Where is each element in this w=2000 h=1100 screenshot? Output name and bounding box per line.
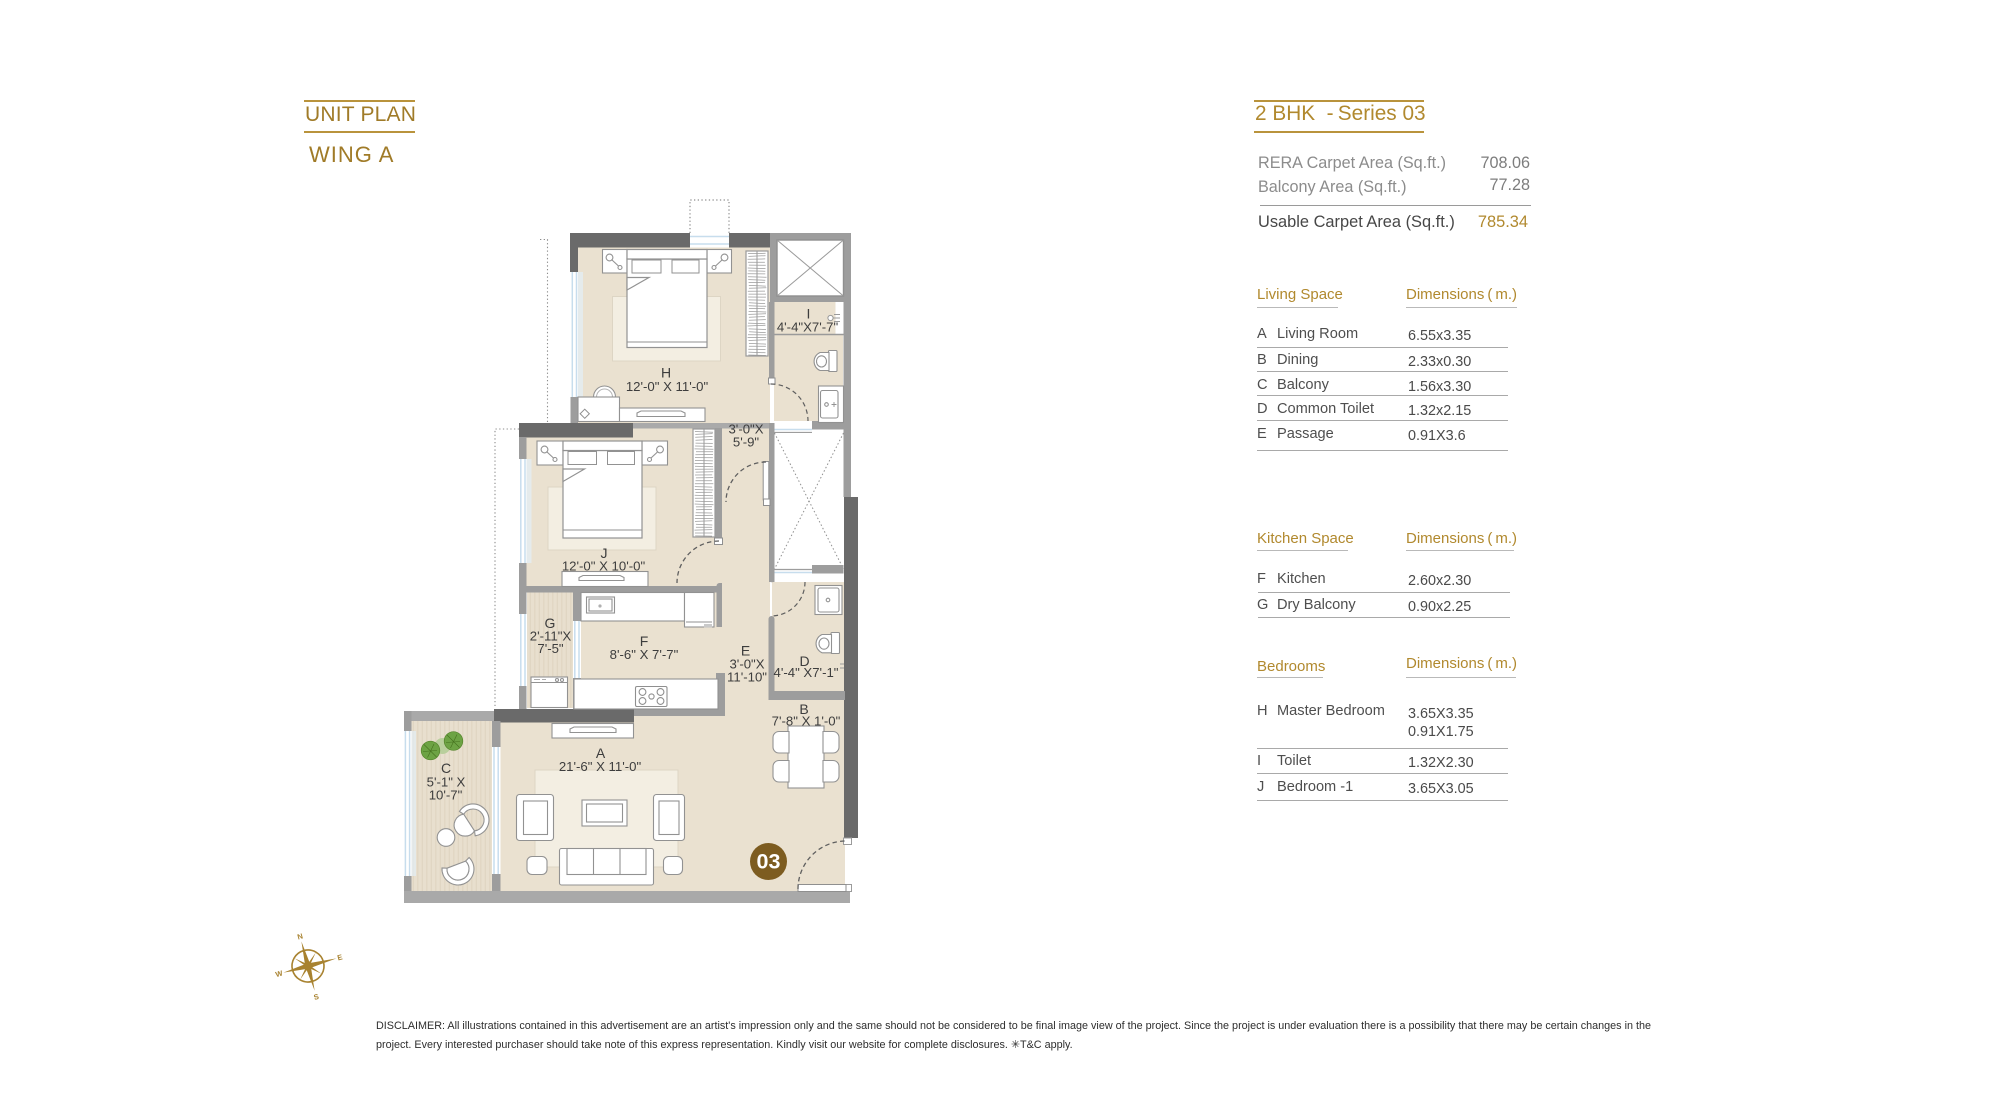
svg-text:10'-7": 10'-7" xyxy=(429,788,463,803)
svg-text:N: N xyxy=(296,931,304,941)
svg-text:21'-6" X 11'-0": 21'-6" X 11'-0" xyxy=(559,759,642,774)
svg-text:4'-4"X7'-7": 4'-4"X7'-7" xyxy=(777,320,839,335)
svg-text:8'-6" X 7'-7": 8'-6" X 7'-7" xyxy=(610,647,679,662)
svg-text:12'-0" X 10'-0": 12'-0" X 10'-0" xyxy=(562,559,646,574)
svg-text:E: E xyxy=(336,952,343,962)
svg-text:7'-5": 7'-5" xyxy=(537,641,564,656)
svg-text:5'-9": 5'-9" xyxy=(733,435,760,450)
svg-text:4'-4" X7'-1": 4'-4" X7'-1" xyxy=(774,665,839,680)
svg-text:12'-0" X 11'-0": 12'-0" X 11'-0" xyxy=(626,379,709,394)
svg-text:7'-8" X 1'-0": 7'-8" X 1'-0" xyxy=(772,714,841,729)
svg-text:S: S xyxy=(313,992,320,1002)
svg-text:11'-10": 11'-10" xyxy=(727,670,767,685)
svg-text:W: W xyxy=(274,968,284,979)
svg-text:03: 03 xyxy=(757,850,781,874)
